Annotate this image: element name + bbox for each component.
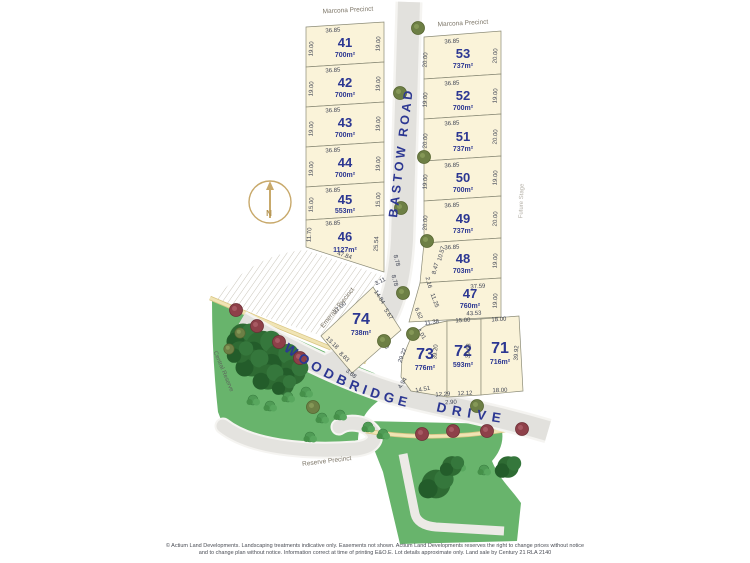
red-tree-icon bbox=[230, 304, 243, 317]
dim-label: 12.29 bbox=[435, 391, 451, 398]
dim-label: 19.00 bbox=[422, 92, 429, 108]
dim-label: 37.59 bbox=[470, 283, 486, 290]
dim-label: 18.00 bbox=[491, 316, 507, 323]
tree-icon bbox=[412, 22, 425, 35]
lot-area: 737m² bbox=[453, 146, 474, 153]
lot-area: 553m² bbox=[335, 208, 356, 215]
dim-label: 19.00 bbox=[375, 36, 382, 52]
dim-label: 36.85 bbox=[325, 107, 341, 114]
lot-area: 738m² bbox=[351, 330, 372, 337]
tree-icon bbox=[397, 287, 410, 300]
lot-number: 73 bbox=[416, 346, 434, 363]
disclaimer-line2: and to change plan without notice. Infor… bbox=[0, 550, 750, 557]
dim-label: 19.00 bbox=[308, 81, 315, 97]
dim-label: 19.00 bbox=[308, 41, 315, 57]
dim-label: 18.00 bbox=[492, 388, 508, 395]
lot-area: 700m² bbox=[453, 187, 474, 194]
dim-label: 36.85 bbox=[325, 27, 341, 34]
lot-number: 42 bbox=[338, 75, 352, 90]
disclaimer: © Actium Land Developments. Landscaping … bbox=[0, 543, 750, 557]
dim-label: 20.00 bbox=[422, 52, 429, 68]
dim-label: 20.00 bbox=[492, 48, 499, 64]
lot-number: 50 bbox=[456, 170, 470, 185]
red-tree-icon bbox=[481, 425, 494, 438]
lot-area: 593m² bbox=[453, 362, 474, 369]
tree-icon bbox=[421, 235, 434, 248]
lot-number: 41 bbox=[338, 35, 352, 50]
dim-label: 36.85 bbox=[325, 147, 341, 154]
red-tree-icon bbox=[273, 336, 286, 349]
lot-area: 700m² bbox=[453, 105, 474, 112]
dim-label: 12.12 bbox=[457, 391, 473, 398]
lot-number: 52 bbox=[456, 88, 470, 103]
lot-number: 48 bbox=[456, 251, 470, 266]
dim-label: 15.00 bbox=[455, 318, 471, 325]
dim-label: 19.00 bbox=[492, 170, 499, 186]
lot-area: 716m² bbox=[490, 359, 511, 366]
dim-label: 39.92 bbox=[514, 345, 521, 361]
dim-label: 36.85 bbox=[325, 67, 341, 74]
dim-label: 20.00 bbox=[422, 133, 429, 149]
dim-label: 11.70 bbox=[307, 227, 314, 243]
dim-label: 19.00 bbox=[375, 116, 382, 132]
future-stage-label: Future Stage bbox=[518, 183, 525, 219]
red-tree-icon bbox=[447, 425, 460, 438]
dim-label: 36.85 bbox=[444, 120, 460, 127]
dim-label: 19.00 bbox=[375, 76, 382, 92]
dim-label: 36.85 bbox=[444, 38, 460, 45]
tree-icon bbox=[307, 401, 320, 414]
dim-label: 36.85 bbox=[325, 187, 341, 194]
dim-label: 36.85 bbox=[444, 202, 460, 209]
red-tree-icon bbox=[516, 423, 529, 436]
tree-icon bbox=[418, 151, 431, 164]
lot-area: 776m² bbox=[415, 365, 436, 372]
lot-area: 737m² bbox=[453, 63, 474, 70]
dim-label: 15.00 bbox=[308, 197, 315, 213]
dim-label: 19.00 bbox=[422, 174, 429, 190]
dim-label: 19.00 bbox=[492, 293, 499, 309]
dim-label: 36.85 bbox=[325, 220, 341, 227]
lot-area: 703m² bbox=[453, 268, 474, 275]
lot-number: 45 bbox=[338, 192, 352, 207]
dim-label: 39.68 bbox=[466, 343, 473, 359]
dim-label: 36.85 bbox=[444, 80, 460, 87]
red-tree-icon bbox=[251, 320, 264, 333]
dim-label: 43.53 bbox=[466, 311, 482, 318]
tree-icon bbox=[235, 328, 245, 338]
lot-area: 700m² bbox=[335, 52, 356, 59]
lot-area: 700m² bbox=[335, 132, 356, 139]
lot-area: 737m² bbox=[453, 228, 474, 235]
lot-number: 44 bbox=[338, 155, 353, 170]
lot-number: 51 bbox=[456, 129, 470, 144]
tree-icon bbox=[224, 344, 234, 354]
tree-icon bbox=[378, 335, 391, 348]
tree-icon bbox=[407, 328, 420, 341]
lot-number: 53 bbox=[456, 46, 470, 61]
lot-number: 74 bbox=[352, 311, 370, 328]
lot-number: 43 bbox=[338, 115, 352, 130]
dim-label: 20.00 bbox=[492, 129, 499, 145]
dim-label: 19.00 bbox=[492, 253, 499, 269]
dim-label: 19.00 bbox=[375, 156, 382, 172]
precinct-plan: Marcona 2 Precinct bbox=[0, 0, 750, 563]
dim-label: 15.00 bbox=[375, 192, 382, 208]
dim-label: 36.85 bbox=[444, 162, 460, 169]
lot-area: 700m² bbox=[335, 92, 356, 99]
dim-label: 20.00 bbox=[492, 211, 499, 227]
lot-number: 49 bbox=[456, 211, 470, 226]
lot-number: 71 bbox=[491, 340, 509, 357]
plan-svg: 41 700m² 42 700m² 43 700m² 44 700m² 45 5… bbox=[0, 0, 750, 563]
north-label: N bbox=[266, 209, 272, 218]
lot-area: 700m² bbox=[335, 172, 356, 179]
dim-label: 19.00 bbox=[308, 121, 315, 137]
dim-label: 19.00 bbox=[492, 88, 499, 104]
dim-label: 25.54 bbox=[373, 236, 380, 252]
lot-area: 760m² bbox=[460, 303, 481, 310]
disclaimer-line1: © Actium Land Developments. Landscaping … bbox=[0, 543, 750, 550]
lot-number: 46 bbox=[338, 229, 352, 244]
dim-label: 20.00 bbox=[422, 215, 429, 231]
red-tree-icon bbox=[416, 428, 429, 441]
dim-label: 19.00 bbox=[308, 161, 315, 177]
